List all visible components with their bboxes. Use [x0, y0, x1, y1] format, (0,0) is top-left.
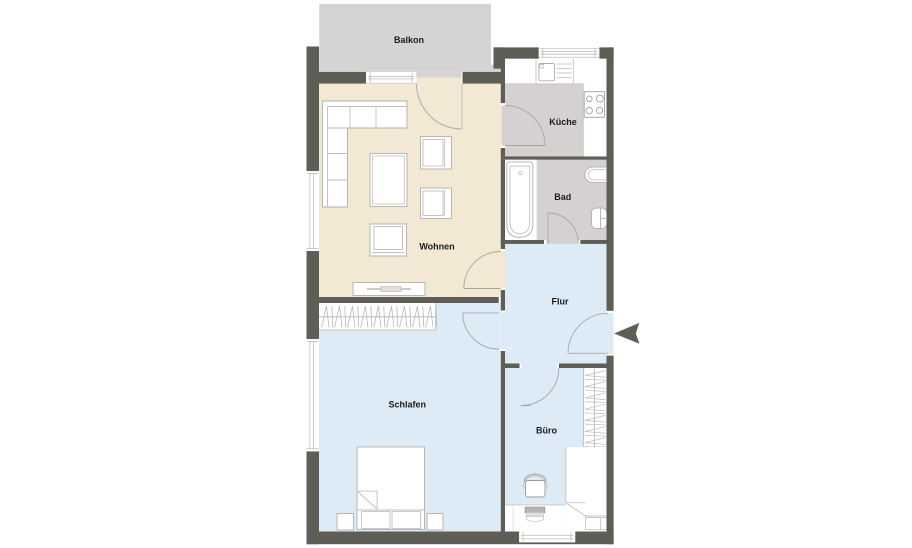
svg-text:Flur: Flur	[552, 297, 569, 307]
svg-text:Schlafen: Schlafen	[389, 400, 427, 410]
svg-text:Balkon: Balkon	[394, 35, 424, 45]
svg-text:Büro: Büro	[536, 426, 557, 436]
svg-text:Bad: Bad	[554, 192, 571, 202]
svg-text:Wohnen: Wohnen	[419, 242, 454, 252]
svg-text:Küche: Küche	[549, 117, 577, 127]
